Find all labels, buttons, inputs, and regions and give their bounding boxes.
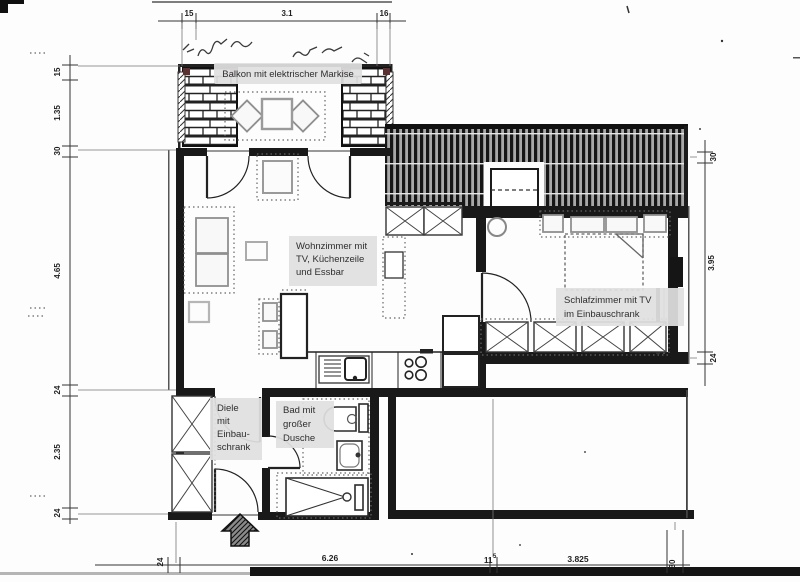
label-schlafzimmer-line1: Schlafzimmer mit TV xyxy=(564,295,652,306)
label-diele-line2: mit xyxy=(217,416,230,427)
label-diele-line4: schrank xyxy=(217,442,251,453)
dim-bottom-wall-mid: 11 xyxy=(484,556,493,565)
shower-panel xyxy=(355,485,363,510)
label-wohnzimmer-line2: TV, Küchenzeile xyxy=(296,254,364,265)
nightstand xyxy=(543,215,563,232)
tv-wall-block xyxy=(670,257,683,287)
kitchen-wall-cabinets xyxy=(386,207,462,235)
side-table xyxy=(189,302,209,322)
dim-left-wall-bottom: 24 xyxy=(53,508,62,517)
dim-left-wall-top: 30 xyxy=(53,146,62,155)
dim-bottom-schlafzimmer-width: 3.825 xyxy=(567,554,589,564)
floor-plan-page: 15 3.1 16 15 1.35 30 4.65 24 2.35 24 30 … xyxy=(0,0,800,582)
label-balkon: Balkon mit elektrischer Markise xyxy=(222,69,353,80)
dim-left-wohnzimmer-height: 4.65 xyxy=(53,263,62,279)
wall-living-balcony xyxy=(350,148,392,156)
dim-right-wall-bottom: 24 xyxy=(709,353,718,362)
wall-living-south xyxy=(262,388,688,397)
dining-table xyxy=(263,161,292,193)
dim-top-left-wall: 15 xyxy=(185,9,194,18)
scan-bottom-edge xyxy=(250,567,800,576)
balcony-table xyxy=(262,99,292,129)
label-diele-line1: Diele xyxy=(217,403,239,414)
bar-stool xyxy=(263,331,277,348)
label-diele-line3: Einbau- xyxy=(217,429,250,440)
kitchen-tall-unit xyxy=(443,316,479,352)
wall-bad-right xyxy=(370,388,379,520)
dim-left-wall-mid: 24 xyxy=(53,385,62,394)
dim-bottom-wall-left: 24 xyxy=(156,557,165,566)
coffee-table xyxy=(246,242,267,260)
toilet-tank xyxy=(359,404,368,432)
dim-bottom-wohnzimmer-width: 6.26 xyxy=(322,553,339,563)
bar-stool xyxy=(263,303,277,321)
basin-tap xyxy=(356,453,361,458)
kitchen-appliance xyxy=(385,252,403,278)
dim-bottom-wall-right: 30 xyxy=(668,559,677,568)
label-wohnzimmer-line1: Wohnzimmer mit xyxy=(296,241,367,252)
label-wohnzimmer-line3: und Essbar xyxy=(296,267,344,278)
dim-left-parapet: 15 xyxy=(53,67,62,76)
sofa-cushion xyxy=(196,254,228,286)
dim-left-diele-height: 2.35 xyxy=(53,444,62,460)
nightstand xyxy=(644,215,666,232)
sink-tap xyxy=(353,376,357,380)
dim-top-span: 3.1 xyxy=(281,9,293,18)
pillow xyxy=(606,217,637,232)
kitchen-tall-unit xyxy=(443,354,479,387)
dim-right-wall-top: 30 xyxy=(709,152,718,161)
floor-plan-drawing: 15 3.1 16 15 1.35 30 4.65 24 2.35 24 30 … xyxy=(0,0,800,582)
dim-top-right-wall: 16 xyxy=(380,9,389,18)
label-schlafzimmer-line2: im Einbauschrank xyxy=(564,309,640,320)
essbar-counter xyxy=(281,294,307,358)
shower-drain xyxy=(343,493,351,501)
pillow xyxy=(571,217,604,232)
label-bad-line3: Dusche xyxy=(283,433,315,444)
sofa-cushion xyxy=(196,218,228,253)
terrace-hatch xyxy=(385,124,688,214)
label-bad-line1: Bad mit xyxy=(283,405,316,416)
dim-right-schlafzimmer-height: 3.95 xyxy=(707,255,716,271)
label-bad-line2: großer xyxy=(283,419,311,430)
dim-left-balkon-depth: 1.35 xyxy=(53,105,62,121)
